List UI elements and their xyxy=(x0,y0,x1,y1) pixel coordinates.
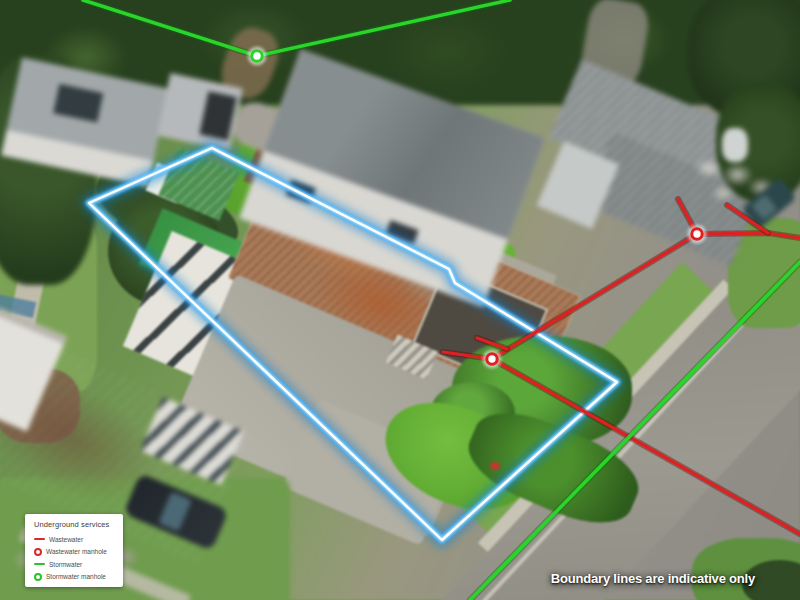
legend-item-label: Stormwater xyxy=(49,561,82,568)
legend-item-stormwater: Stormwater xyxy=(34,560,117,568)
legend-item-label: Stormwater manhole xyxy=(46,573,106,580)
wastewater-manhole-icon xyxy=(34,548,42,556)
legend-item-wastewater: Wastewater xyxy=(34,535,117,543)
legend-title: Underground services xyxy=(34,520,117,529)
legend-item-label: Wastewater manhole xyxy=(46,548,107,555)
stormwater-line-icon xyxy=(34,563,45,566)
suv-windshield xyxy=(159,492,191,531)
boundary-disclaimer: Boundary lines are indicative only xyxy=(551,571,755,586)
legend-item-wastewater-manhole: Wastewater manhole xyxy=(34,548,117,556)
legend-item-label: Wastewater xyxy=(49,536,83,543)
legend-panel: Underground services Wastewater Wastewat… xyxy=(25,514,123,587)
legend-item-stormwater-manhole: Stormwater manhole xyxy=(34,573,117,581)
wastewater-line-icon xyxy=(34,538,45,541)
photo-bottom-band xyxy=(0,0,800,600)
aerial-photo-stage: Underground services Wastewater Wastewat… xyxy=(0,0,800,600)
stormwater-manhole-icon xyxy=(34,573,42,581)
